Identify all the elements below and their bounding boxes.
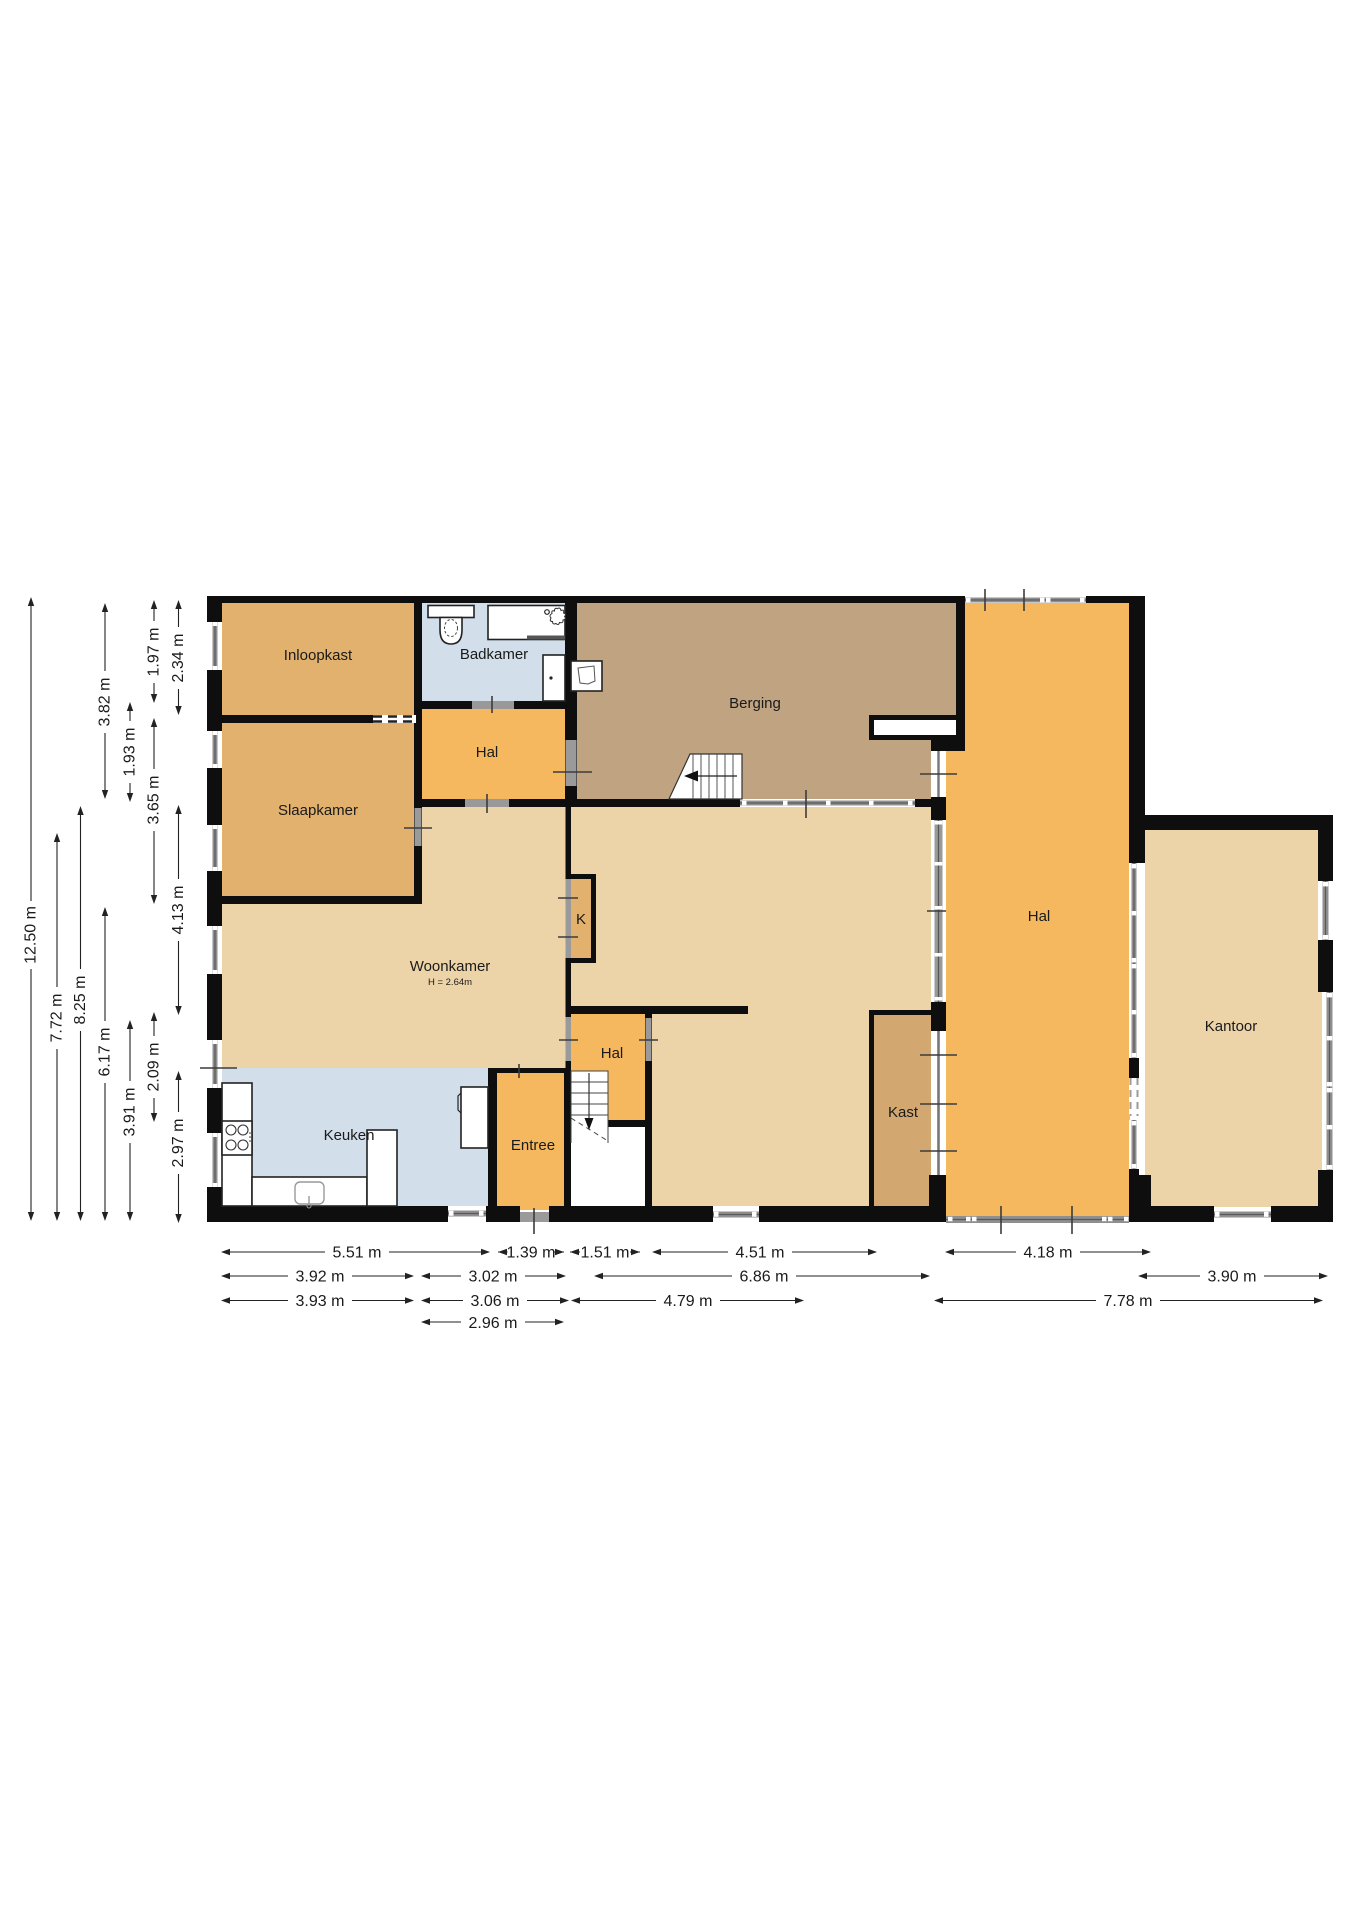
svg-text:Keuken: Keuken [324, 1127, 375, 1144]
svg-text:Kantoor: Kantoor [1205, 1018, 1258, 1035]
svg-text:Hal: Hal [476, 744, 499, 761]
svg-text:3.06 m: 3.06 m [471, 1293, 520, 1310]
svg-text:Kast: Kast [888, 1104, 919, 1121]
svg-text:K: K [576, 911, 586, 928]
svg-text:Berging: Berging [729, 695, 781, 712]
svg-text:2.34 m: 2.34 m [170, 634, 187, 683]
svg-text:1.97 m: 1.97 m [146, 628, 163, 677]
svg-text:3.93 m: 3.93 m [296, 1293, 345, 1310]
svg-text:3.91 m: 3.91 m [122, 1088, 139, 1137]
svg-text:3.82 m: 3.82 m [97, 678, 114, 727]
svg-text:2.97 m: 2.97 m [170, 1119, 187, 1168]
svg-text:4.13 m: 4.13 m [170, 886, 187, 935]
svg-text:3.02 m: 3.02 m [469, 1269, 518, 1286]
svg-text:Hal: Hal [601, 1045, 624, 1062]
svg-text:Slaapkamer: Slaapkamer [278, 802, 358, 819]
svg-text:5.51 m: 5.51 m [333, 1245, 382, 1262]
svg-text:3.90 m: 3.90 m [1208, 1269, 1257, 1286]
svg-text:3.92 m: 3.92 m [296, 1269, 345, 1286]
svg-text:3.65 m: 3.65 m [146, 776, 163, 825]
svg-text:Badkamer: Badkamer [460, 646, 528, 663]
svg-text:1.51 m: 1.51 m [581, 1245, 630, 1262]
svg-text:1.39 m: 1.39 m [507, 1245, 556, 1262]
svg-text:6.86 m: 6.86 m [740, 1269, 789, 1286]
svg-text:6.17 m: 6.17 m [97, 1028, 114, 1077]
svg-text:7.72 m: 7.72 m [49, 994, 66, 1043]
svg-text:2.96 m: 2.96 m [469, 1315, 518, 1332]
svg-text:Inloopkast: Inloopkast [284, 647, 353, 664]
svg-text:2.09 m: 2.09 m [146, 1043, 163, 1092]
svg-text:7.78 m: 7.78 m [1104, 1293, 1153, 1310]
svg-text:1.93 m: 1.93 m [122, 728, 139, 777]
svg-text:H = 2.64m: H = 2.64m [428, 977, 472, 988]
svg-text:Hal: Hal [1028, 908, 1051, 925]
svg-text:8.25 m: 8.25 m [72, 976, 89, 1025]
svg-text:4.51 m: 4.51 m [736, 1245, 785, 1262]
svg-text:4.18 m: 4.18 m [1024, 1245, 1073, 1262]
svg-text:4.79 m: 4.79 m [664, 1293, 713, 1310]
svg-text:12.50 m: 12.50 m [23, 906, 40, 964]
svg-text:Entree: Entree [511, 1137, 555, 1154]
svg-text:Woonkamer: Woonkamer [410, 958, 491, 975]
